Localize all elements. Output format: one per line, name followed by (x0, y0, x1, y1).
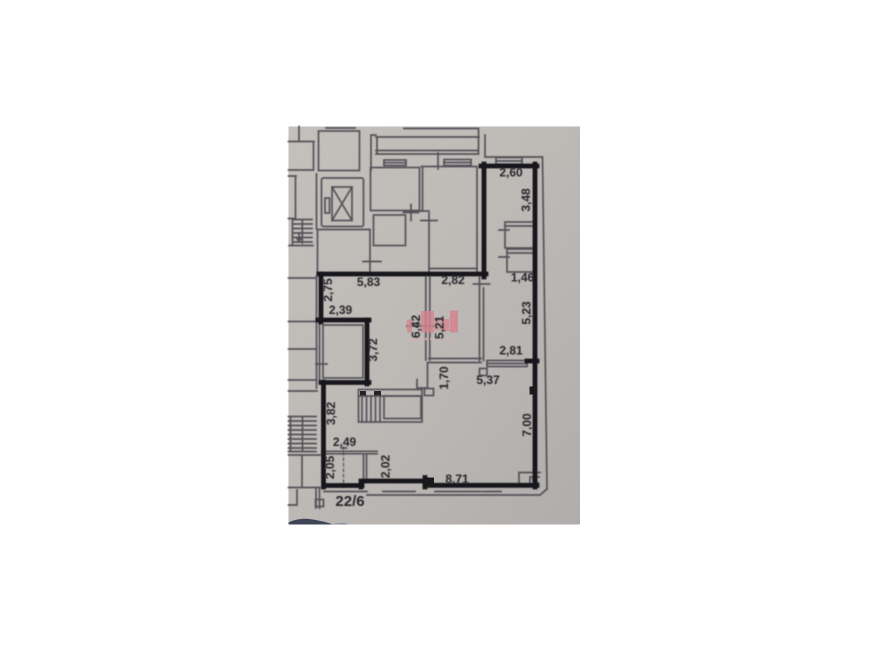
svg-text:5,37: 5,37 (476, 373, 500, 387)
svg-text:2,02: 2,02 (379, 454, 393, 478)
svg-text:1,46: 1,46 (511, 271, 535, 285)
svg-text:2,60: 2,60 (499, 166, 523, 180)
svg-text:1,70: 1,70 (437, 366, 451, 390)
svg-text:2,39: 2,39 (329, 303, 353, 317)
svg-text:2,81: 2,81 (499, 344, 523, 358)
svg-text:5,23: 5,23 (520, 301, 534, 325)
svg-text:6,42: 6,42 (409, 314, 423, 338)
svg-text:5,21: 5,21 (433, 315, 447, 339)
svg-text:2,82: 2,82 (441, 273, 465, 287)
svg-text:2,75: 2,75 (321, 278, 335, 302)
svg-text:2,05: 2,05 (323, 455, 337, 479)
svg-text:3,48: 3,48 (519, 188, 533, 212)
svg-text:3,82: 3,82 (324, 401, 338, 425)
svg-text:2,49: 2,49 (333, 435, 357, 449)
svg-text:8,71: 8,71 (445, 472, 469, 486)
svg-text:5,83: 5,83 (357, 275, 381, 289)
svg-text:3,72: 3,72 (366, 338, 380, 362)
svg-text:7,00: 7,00 (520, 413, 534, 437)
svg-text:22/6: 22/6 (335, 493, 364, 510)
